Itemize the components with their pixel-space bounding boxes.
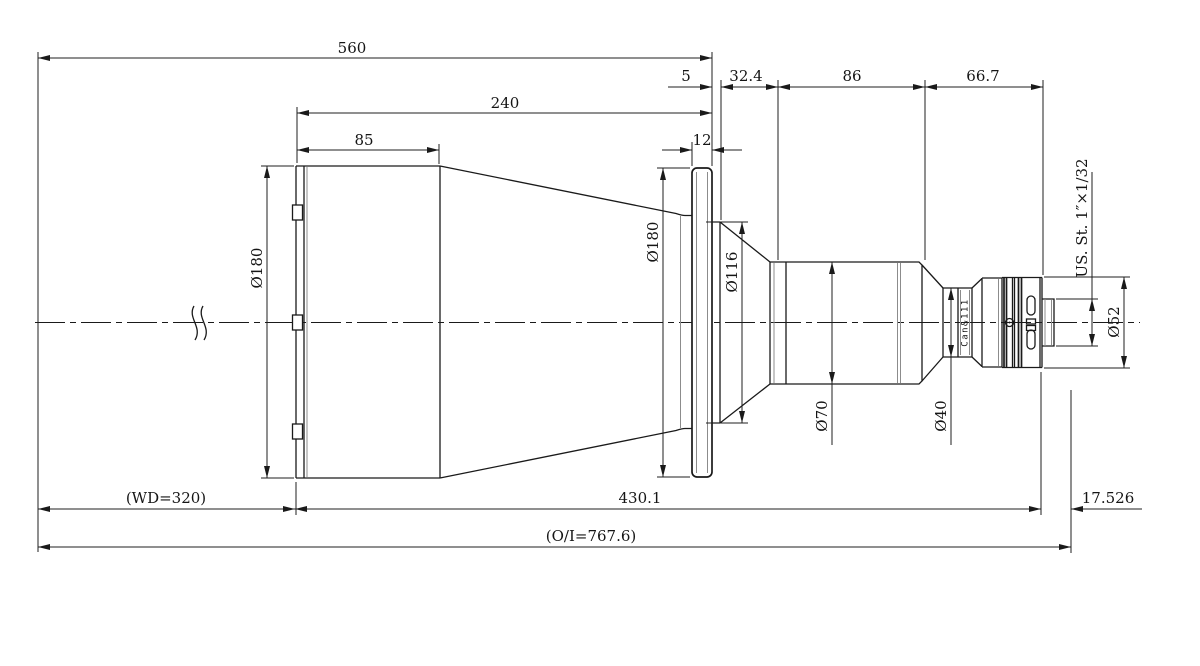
mounting-flange xyxy=(692,168,712,477)
front-tab-middle xyxy=(293,315,303,330)
rear-ring-group xyxy=(972,278,1042,368)
dim-dia180-flange-label: Ø180 xyxy=(644,222,662,263)
dim-17_526-label: 17.526 xyxy=(1082,489,1135,507)
dim-dia70-label: Ø70 xyxy=(813,400,831,431)
slot-top xyxy=(1027,296,1035,315)
dimension-labels: 560 5 32.4 86 66.7 240 85 12 (WD=320) 43… xyxy=(126,39,1134,545)
dim-thread-label: US. St. 1″×1/32 xyxy=(1073,158,1091,277)
slot-bottom xyxy=(1027,330,1035,349)
dim-32_4-label: 32.4 xyxy=(729,67,762,85)
dim-5-label: 5 xyxy=(681,67,691,85)
dim-240-label: 240 xyxy=(491,94,520,112)
dim-dia180-front-label: Ø180 xyxy=(248,248,266,289)
optical-axis-centerline xyxy=(35,306,1140,340)
drawing-page: Can&111 xyxy=(0,0,1200,666)
front-tab-top xyxy=(293,205,303,220)
set-screw-center xyxy=(1009,322,1011,324)
dim-86-label: 86 xyxy=(842,67,861,85)
barrel-marking-text: Can&111 xyxy=(961,298,971,346)
dim-dia40-label: Ø40 xyxy=(932,400,950,431)
dim-85-label: 85 xyxy=(354,131,373,149)
dim-wd-label: (WD=320) xyxy=(126,489,206,507)
dim-12-label: 12 xyxy=(692,131,711,149)
dim-430_1-label: 430.1 xyxy=(619,489,662,507)
dim-dia116-label: Ø116 xyxy=(723,252,741,293)
dim-dia52-label: Ø52 xyxy=(1105,306,1123,337)
dim-560-label: 560 xyxy=(338,39,367,57)
lens-outline-drawing: Can&111 xyxy=(0,0,1200,666)
dimension-lines xyxy=(38,58,1142,547)
front-tab-bottom xyxy=(293,424,303,439)
dim-66_7-label: 66.7 xyxy=(966,67,999,85)
dim-oi-label: (O/I=767.6) xyxy=(546,527,637,545)
